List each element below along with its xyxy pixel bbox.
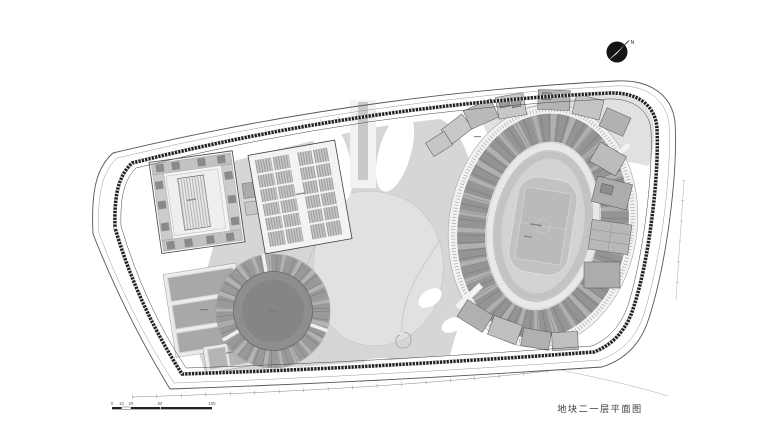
scale-segment [122, 407, 132, 409]
annex-building [588, 219, 632, 254]
annex-building [584, 262, 620, 288]
scale-segment [131, 407, 160, 409]
annex-building [538, 89, 571, 110]
north-label: N [631, 40, 635, 46]
entry-walkway-strip [358, 102, 368, 180]
site-plan-sheet: N 0 10 20 50 100 地块二一层平面图 [0, 0, 768, 432]
scale-segment [161, 407, 212, 409]
courts-hall-building [248, 140, 352, 254]
annex-building [495, 93, 526, 120]
drawing-caption: 地块二一层平面图 [557, 403, 643, 414]
annex-building [552, 332, 579, 351]
scale-segment [112, 407, 122, 409]
scale-label-100: 100 [209, 401, 217, 406]
site-plan-drawing: N 0 10 20 50 100 地块二一层平面图 [0, 0, 768, 432]
scale-label-50: 50 [158, 401, 163, 406]
scale-label-20: 20 [129, 401, 134, 406]
scale-label-10: 10 [119, 401, 124, 406]
court [207, 347, 228, 370]
